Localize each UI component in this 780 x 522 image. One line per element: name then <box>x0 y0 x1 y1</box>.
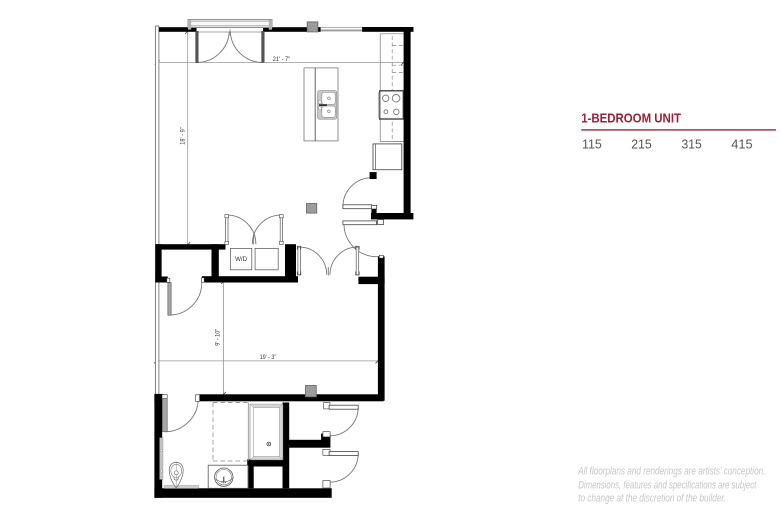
svg-text:to change at the discretion of: to change at the discretion of the build… <box>578 493 726 505</box>
svg-text:W/D: W/D <box>235 256 248 263</box>
svg-text:19' - 3": 19' - 3" <box>260 355 277 361</box>
svg-text:21' - 7": 21' - 7" <box>273 57 291 63</box>
svg-text:18' - 9": 18' - 9" <box>180 127 186 145</box>
svg-text:9' - 10": 9' - 10" <box>216 329 222 346</box>
svg-text:215: 215 <box>631 136 652 151</box>
svg-text:115: 115 <box>582 136 602 151</box>
svg-text:Dimensions, features and speci: Dimensions, features and specifications … <box>578 480 757 492</box>
svg-text:315: 315 <box>682 136 702 151</box>
svg-text:1-BEDROOM UNIT: 1-BEDROOM UNIT <box>581 112 681 126</box>
svg-text:All floorplans and renderings: All floorplans and renderings are artist… <box>577 466 765 478</box>
svg-text:415: 415 <box>731 136 753 151</box>
